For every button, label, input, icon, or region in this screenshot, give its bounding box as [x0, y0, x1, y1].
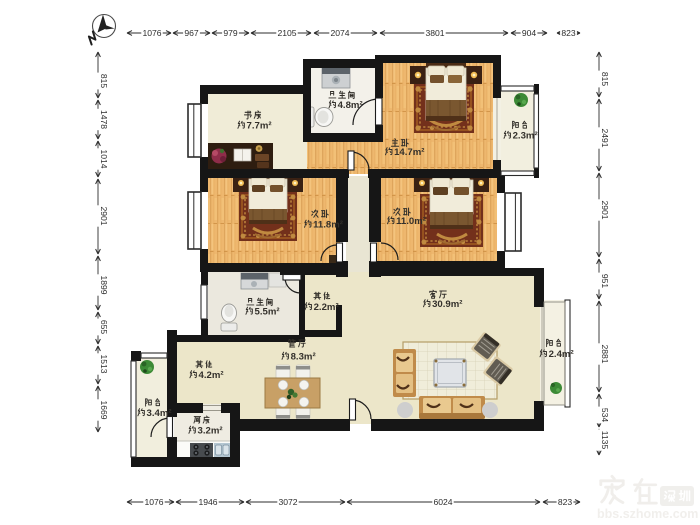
svg-text:6024: 6024 — [433, 497, 452, 507]
svg-text:979: 979 — [223, 28, 238, 38]
svg-text:655: 655 — [99, 320, 109, 335]
svg-text:2.4m²: 2.4m² — [549, 349, 574, 360]
svg-text:904: 904 — [522, 28, 537, 38]
svg-text:1076: 1076 — [144, 497, 163, 507]
svg-text:1135: 1135 — [600, 431, 610, 450]
svg-text:30.9m²: 30.9m² — [432, 299, 462, 310]
svg-text:2105: 2105 — [277, 28, 296, 38]
svg-text:3.2m²: 3.2m² — [198, 425, 223, 436]
svg-text:7.7m²: 7.7m² — [247, 120, 272, 131]
svg-text:967: 967 — [184, 28, 199, 38]
svg-text:1899: 1899 — [99, 275, 109, 294]
svg-text:2.2m²: 2.2m² — [314, 302, 339, 313]
svg-text:1669: 1669 — [99, 400, 109, 419]
svg-text:bbs.szhome.com: bbs.szhome.com — [597, 507, 698, 521]
svg-text:1076: 1076 — [142, 28, 161, 38]
svg-text:815: 815 — [99, 74, 109, 89]
svg-text:1513: 1513 — [99, 354, 109, 373]
svg-text:2901: 2901 — [99, 206, 109, 225]
svg-text:823: 823 — [558, 497, 573, 507]
svg-text:1014: 1014 — [99, 149, 109, 168]
svg-text:4.8m²: 4.8m² — [338, 100, 363, 111]
svg-text:3801: 3801 — [425, 28, 444, 38]
svg-text:2901: 2901 — [600, 200, 610, 219]
svg-text:11.0m²: 11.0m² — [396, 216, 426, 227]
svg-text:3072: 3072 — [278, 497, 297, 507]
svg-text:823: 823 — [561, 28, 576, 38]
svg-text:2491: 2491 — [600, 128, 610, 147]
svg-text:8.3m²: 8.3m² — [291, 351, 316, 362]
svg-text:11.8m²: 11.8m² — [313, 219, 343, 230]
svg-text:3.4m²: 3.4m² — [147, 408, 172, 419]
svg-text:2074: 2074 — [330, 28, 349, 38]
svg-text:14.7m²: 14.7m² — [394, 147, 424, 158]
svg-text:2881: 2881 — [600, 344, 610, 363]
svg-text:815: 815 — [600, 72, 610, 87]
svg-text:4.2m²: 4.2m² — [199, 370, 224, 381]
svg-text:1478: 1478 — [99, 110, 109, 129]
svg-text:1946: 1946 — [198, 497, 217, 507]
svg-text:534: 534 — [600, 408, 610, 423]
svg-text:951: 951 — [600, 274, 610, 289]
svg-text:5.5m²: 5.5m² — [255, 306, 280, 317]
svg-text:2.3m²: 2.3m² — [513, 130, 538, 141]
